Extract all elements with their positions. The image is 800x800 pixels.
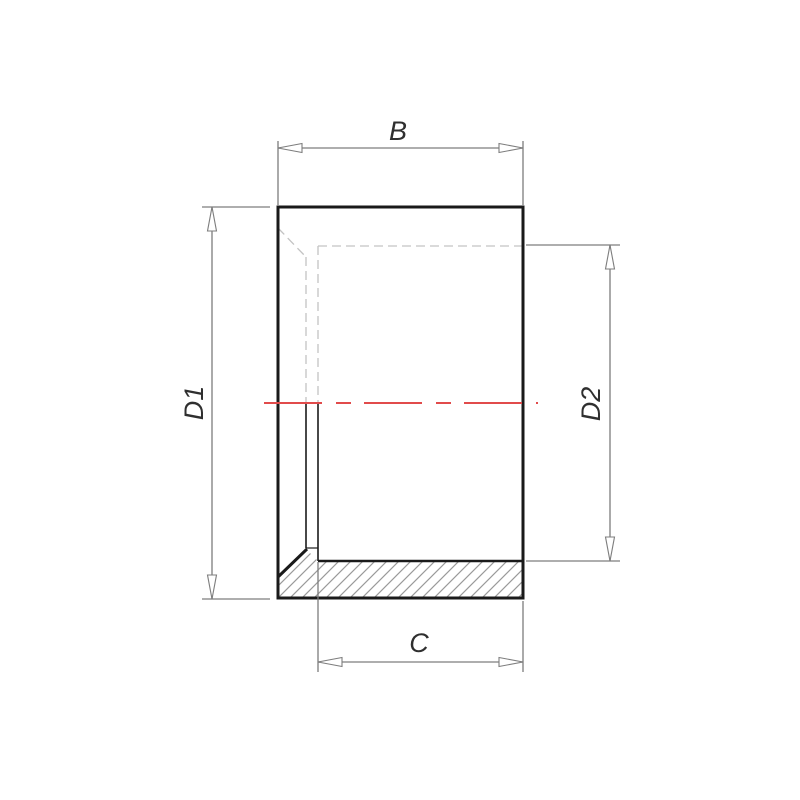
arrowhead-c-left bbox=[318, 658, 342, 667]
label-b: B bbox=[389, 116, 407, 146]
dimension-D1: D1 bbox=[179, 207, 270, 599]
technical-drawing: B D1 D2 C bbox=[0, 0, 800, 800]
label-d1: D1 bbox=[179, 386, 209, 421]
hidden-chamfer-line bbox=[278, 228, 306, 257]
arrowhead-d2-bottom bbox=[606, 537, 615, 561]
label-c: C bbox=[409, 628, 429, 658]
arrowhead-d2-top bbox=[606, 245, 615, 269]
arrowhead-d1-bottom bbox=[208, 575, 217, 599]
hidden-lines bbox=[278, 228, 523, 403]
drawing-canvas: B D1 D2 C bbox=[0, 0, 800, 800]
arrowhead-b-left bbox=[278, 144, 302, 153]
dimension-B: B bbox=[278, 116, 523, 205]
arrowhead-d1-top bbox=[208, 207, 217, 231]
arrowhead-c-right bbox=[499, 658, 523, 667]
hatch-bottom-wall bbox=[318, 561, 523, 598]
dimension-D2: D2 bbox=[526, 245, 620, 561]
label-d2: D2 bbox=[576, 387, 606, 422]
arrowhead-b-right bbox=[499, 144, 523, 153]
section-hatching bbox=[278, 550, 523, 598]
